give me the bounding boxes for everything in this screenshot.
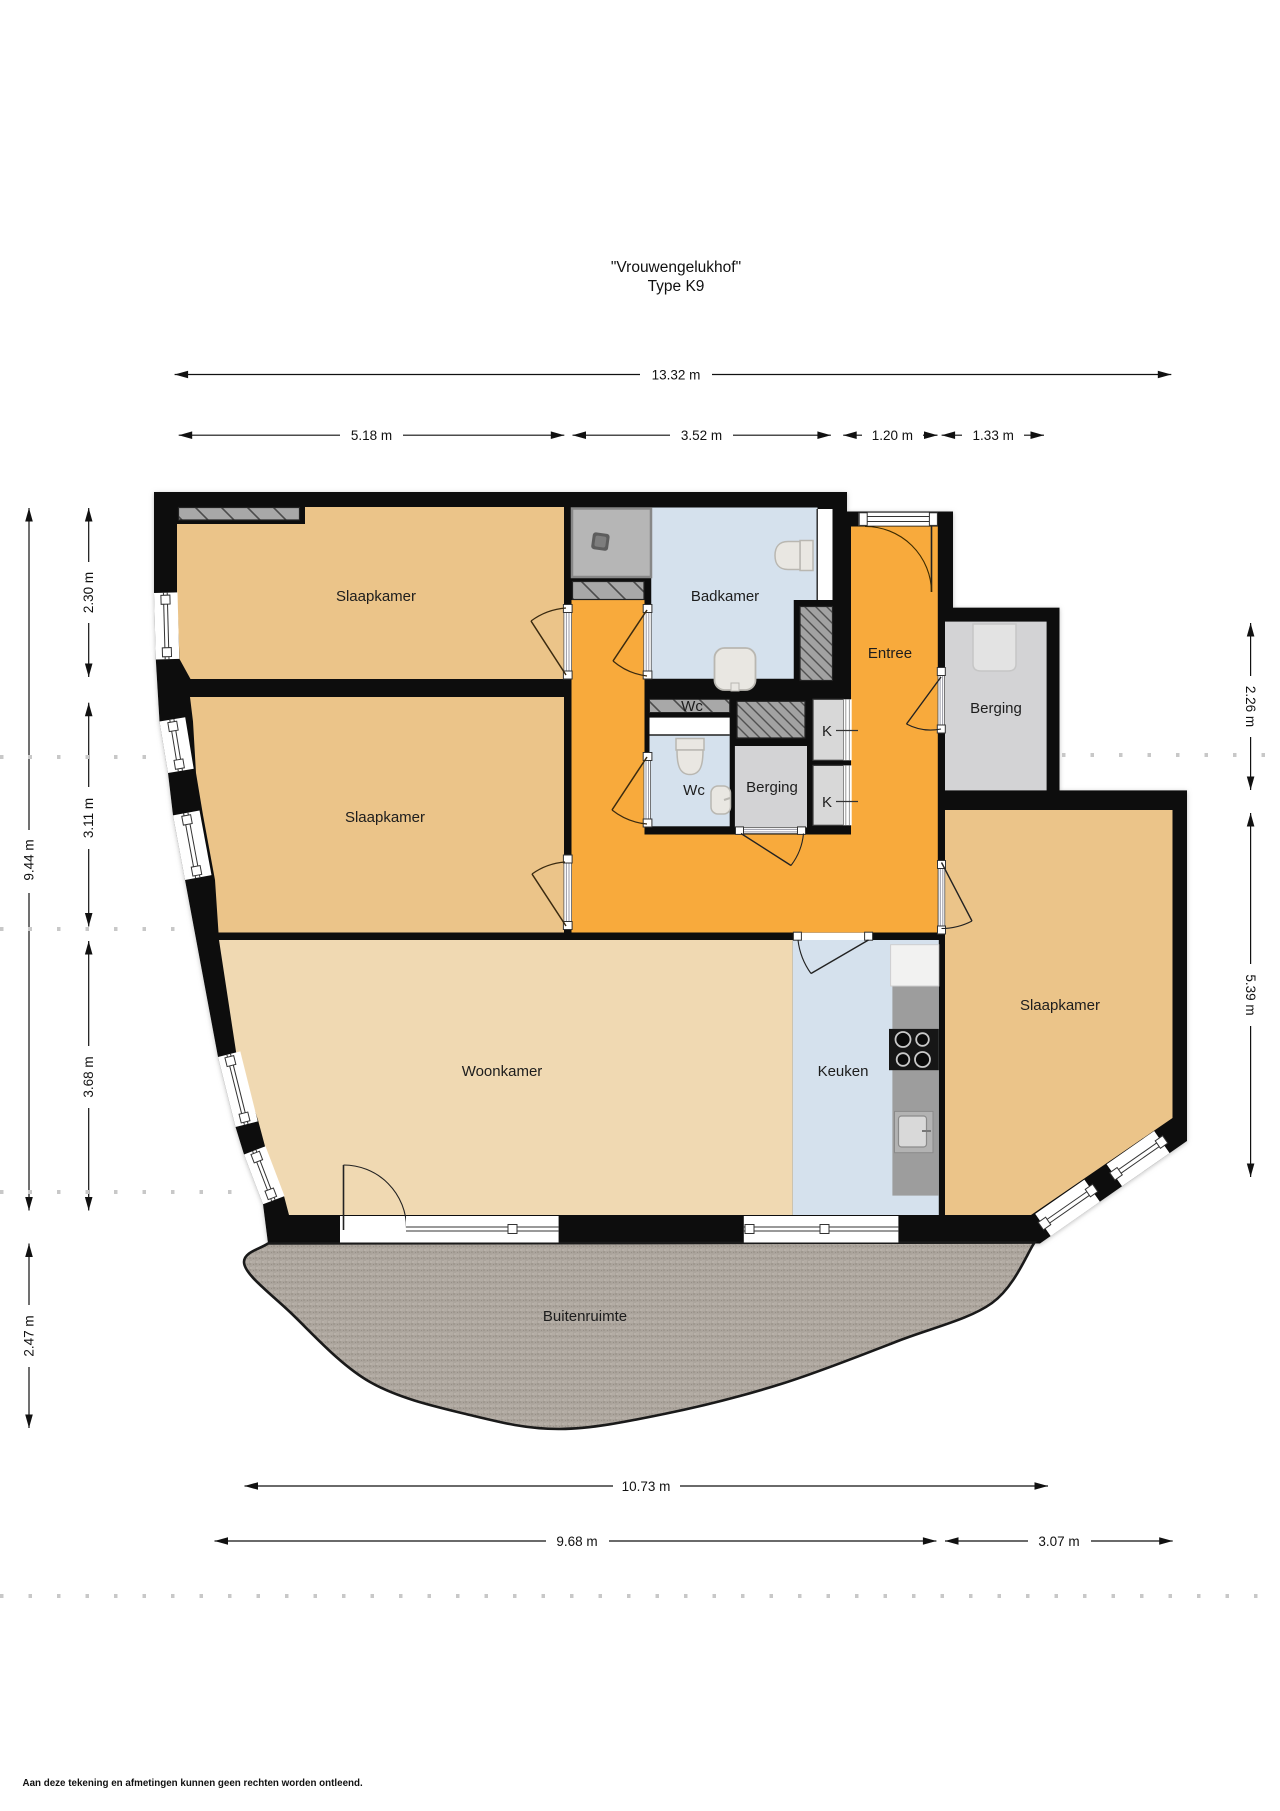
svg-text:3.11 m: 3.11 m	[81, 798, 96, 838]
svg-text:3.52 m: 3.52 m	[681, 428, 722, 443]
svg-text:Aan deze tekening en afmetinge: Aan deze tekening en afmetingen kunnen g…	[23, 1778, 363, 1789]
svg-text:1.20 m: 1.20 m	[872, 428, 913, 443]
svg-text:Buitenruimte: Buitenruimte	[543, 1308, 627, 1325]
svg-text:Badkamer: Badkamer	[691, 588, 759, 605]
svg-text:Berging: Berging	[970, 700, 1022, 717]
svg-text:Slaapkamer: Slaapkamer	[1020, 997, 1100, 1014]
svg-text:5.39 m: 5.39 m	[1243, 974, 1258, 1015]
svg-text:Berging: Berging	[746, 779, 798, 796]
svg-text:Slaapkamer: Slaapkamer	[345, 809, 425, 826]
svg-text:Wc: Wc	[683, 782, 705, 799]
svg-text:K: K	[822, 794, 832, 811]
svg-text:10.73 m: 10.73 m	[622, 1479, 671, 1494]
svg-text:1.33 m: 1.33 m	[973, 428, 1014, 443]
svg-text:Wc: Wc	[681, 698, 703, 715]
svg-text:2.47 m: 2.47 m	[22, 1315, 37, 1356]
svg-text:K: K	[822, 723, 832, 740]
svg-text:2.30 m: 2.30 m	[81, 572, 96, 613]
svg-text:3.68 m: 3.68 m	[81, 1056, 96, 1097]
svg-text:9.44 m: 9.44 m	[22, 839, 37, 880]
svg-text:Slaapkamer: Slaapkamer	[336, 588, 416, 605]
svg-text:Woonkamer: Woonkamer	[462, 1063, 543, 1080]
svg-text:2.26 m: 2.26 m	[1243, 686, 1258, 727]
svg-text:Type K9: Type K9	[648, 278, 705, 295]
svg-text:Entree: Entree	[868, 645, 912, 662]
svg-text:5.18 m: 5.18 m	[351, 428, 392, 443]
svg-text:9.68 m: 9.68 m	[556, 1534, 597, 1549]
svg-text:Keuken: Keuken	[818, 1063, 869, 1080]
svg-text:3.07 m: 3.07 m	[1038, 1534, 1079, 1549]
svg-text:13.32 m: 13.32 m	[652, 368, 701, 383]
svg-text:"Vrouwengelukhof": "Vrouwengelukhof"	[611, 259, 741, 276]
